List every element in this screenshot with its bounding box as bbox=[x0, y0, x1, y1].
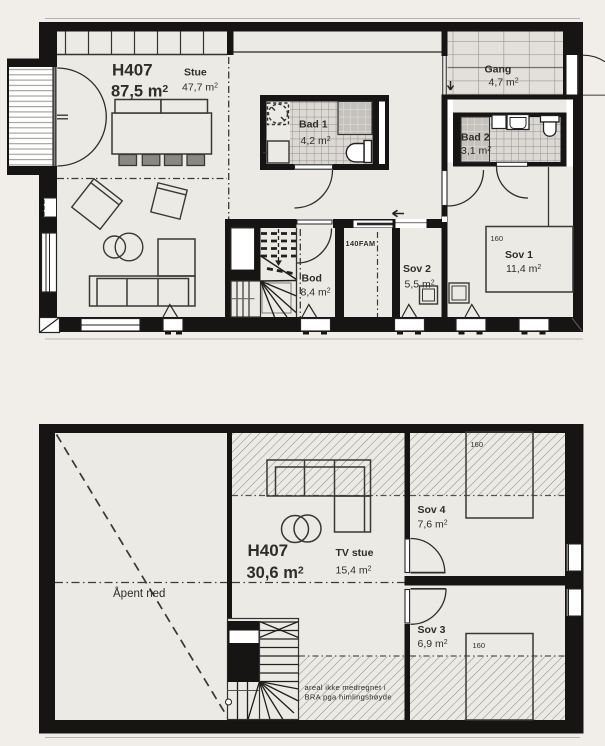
svg-text:11,4 m2: 11,4 m2 bbox=[506, 263, 541, 275]
svg-text:140FAM: 140FAM bbox=[346, 239, 376, 248]
svg-text:160: 160 bbox=[471, 440, 484, 449]
svg-text:Sov 3: Sov 3 bbox=[418, 624, 446, 636]
svg-text:4,2 m2: 4,2 m2 bbox=[301, 135, 331, 147]
svg-text:H407: H407 bbox=[112, 61, 153, 80]
svg-text:TV stue: TV stue bbox=[336, 547, 374, 559]
svg-text:7,6 m2: 7,6 m2 bbox=[418, 519, 448, 531]
svg-text:H407: H407 bbox=[248, 541, 289, 560]
svg-text:Bad 1: Bad 1 bbox=[299, 119, 328, 131]
svg-text:areal ikke medregnet i: areal ikke medregnet i bbox=[305, 683, 386, 692]
svg-text:BRA pga himlingshøyde: BRA pga himlingshøyde bbox=[305, 693, 392, 702]
svg-text:15,4 m2: 15,4 m2 bbox=[336, 565, 372, 577]
svg-text:3,1 m2: 3,1 m2 bbox=[461, 145, 491, 157]
svg-text:5,5 m2: 5,5 m2 bbox=[405, 279, 435, 291]
svg-text:8,4 m2: 8,4 m2 bbox=[301, 287, 331, 299]
svg-text:Sov 1: Sov 1 bbox=[505, 249, 533, 261]
svg-text:6,9 m2: 6,9 m2 bbox=[418, 638, 448, 650]
svg-text:Sov 2: Sov 2 bbox=[403, 263, 431, 275]
svg-text:160: 160 bbox=[473, 641, 486, 650]
svg-text:Åpent ned: Åpent ned bbox=[113, 587, 165, 600]
svg-text:47,7 m2: 47,7 m2 bbox=[182, 82, 218, 94]
svg-text:Stue: Stue bbox=[184, 67, 207, 79]
svg-text:4,7 m2: 4,7 m2 bbox=[489, 77, 519, 89]
svg-text:Sov 4: Sov 4 bbox=[418, 504, 446, 516]
svg-text:30,6 m2: 30,6 m2 bbox=[247, 564, 304, 582]
svg-text:160: 160 bbox=[491, 234, 504, 243]
svg-text:87,5 m2: 87,5 m2 bbox=[111, 83, 168, 101]
svg-text:Bod: Bod bbox=[302, 273, 322, 285]
svg-text:Gang: Gang bbox=[485, 64, 512, 76]
svg-text:Bad 2: Bad 2 bbox=[461, 132, 490, 144]
